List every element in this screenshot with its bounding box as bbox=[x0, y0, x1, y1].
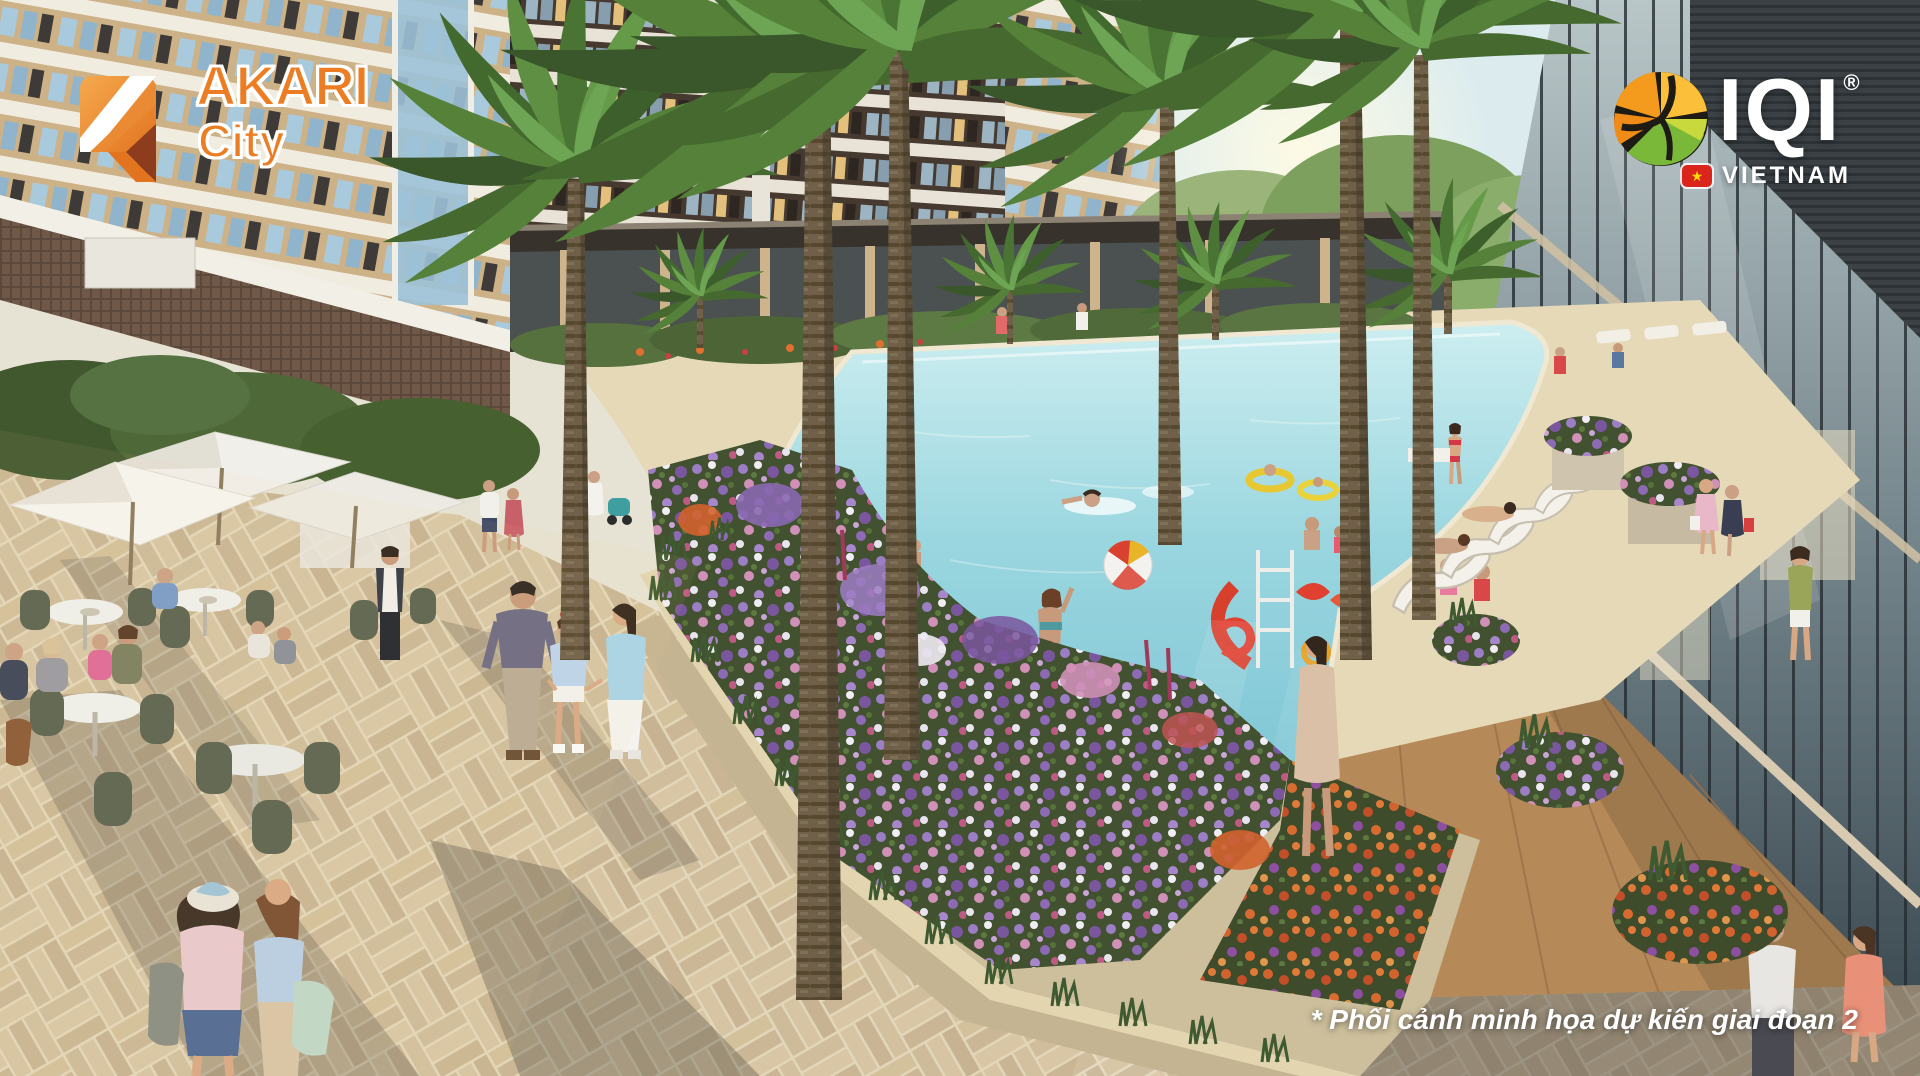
disclaimer-caption: * Phối cảnh minh họa dự kiến giai đoạn 2 bbox=[1311, 1004, 1858, 1036]
akari-logo-icon bbox=[78, 74, 178, 186]
akari-city-logo: AKARI City bbox=[78, 56, 408, 186]
iqi-logo-title: IQI® bbox=[1718, 70, 1860, 151]
akari-logo-subtitle: City bbox=[198, 118, 368, 164]
iqi-vietnam-logo: IQI® ★ VIETNAM bbox=[1612, 70, 1872, 190]
akari-logo-title: AKARI bbox=[196, 58, 368, 114]
iqi-logo-subtitle: VIETNAM bbox=[1722, 162, 1851, 190]
registered-mark-icon: ® bbox=[1843, 70, 1861, 95]
vietnam-flag-icon: ★ bbox=[1682, 165, 1712, 187]
rendering-canvas: AKARI City IQI® ★ VIETNAM * Phối cảnh mi… bbox=[0, 0, 1920, 1076]
iqi-globe-icon bbox=[1612, 70, 1710, 168]
beach-ball bbox=[1104, 541, 1152, 590]
